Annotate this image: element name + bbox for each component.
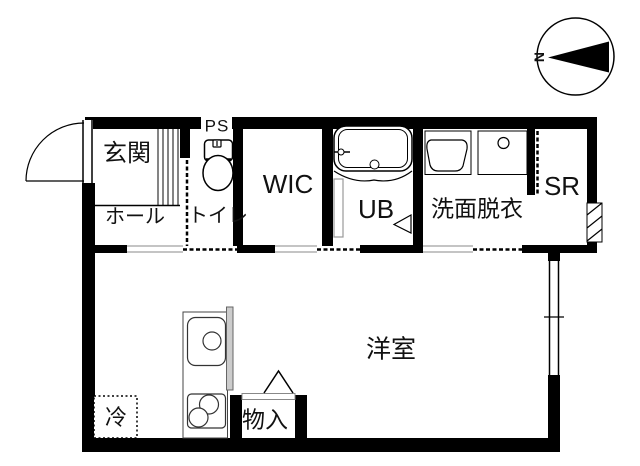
room-label-fridge: 冷 [105, 407, 127, 429]
wall-right-lower [548, 375, 560, 452]
floor-plan: 玄関 ホール トイレ PS WIC UB 洗面脱衣 SR 洋室 物入 冷 N [0, 0, 640, 466]
wall-toilet-left [180, 129, 190, 158]
wall-storage-left [230, 395, 242, 438]
room-label-main-room: 洋室 [366, 338, 416, 363]
bathtub-apron-curve [334, 171, 412, 181]
room-label-ub: UB [358, 196, 394, 222]
compass-icon [537, 18, 614, 95]
wall-left [82, 183, 95, 452]
wall-ub-washroom [413, 129, 423, 246]
room-label-storage: 物入 [242, 409, 288, 432]
wall-wic-ub [322, 129, 333, 246]
entrance-step-stripes [158, 129, 178, 205]
wall-bottom [82, 438, 560, 452]
room-label-hall: ホール [105, 207, 165, 227]
room-label-sr: SR [544, 173, 580, 199]
wall-toilet-right [233, 129, 243, 246]
room-label-toilet: トイレ [188, 206, 248, 226]
entrance-door-swing-arc [26, 123, 84, 181]
wall-storage-right [295, 395, 307, 438]
wall-mid-seg4 [522, 245, 597, 253]
room-label-ps: PS [205, 118, 230, 135]
wall-mid-seg2 [237, 245, 275, 253]
wall-washroom-sr [527, 129, 535, 195]
entrance-door-icon [26, 120, 93, 183]
wall-mid-seg1 [82, 245, 127, 253]
storage-folding-door-mark [264, 371, 293, 393]
toilet-icon [203, 140, 233, 191]
kitchen-unit [183, 307, 233, 438]
storage-door-icon [242, 371, 295, 400]
washer-pan-icon [478, 131, 527, 175]
window-icon [544, 261, 564, 375]
wall-mid-seg3 [360, 245, 423, 253]
room-label-genkan: 玄関 [103, 142, 151, 166]
bathtub-icon [334, 126, 412, 181]
wall-right-stub [548, 253, 560, 261]
vanity-sink-icon [425, 131, 471, 175]
room-label-wic: WIC [263, 171, 314, 197]
sr-shaft-hatch [587, 203, 602, 242]
room-label-washroom: 洗面脱衣 [431, 198, 523, 221]
kitchen-counter-panel [227, 307, 234, 390]
ub-counter [334, 179, 343, 237]
ub-door-icon [394, 215, 411, 233]
kitchen-sink-icon [188, 318, 226, 366]
compass-north-label: N [532, 52, 546, 62]
stove-icon [188, 394, 226, 428]
floor-plan-drawing [0, 0, 640, 466]
